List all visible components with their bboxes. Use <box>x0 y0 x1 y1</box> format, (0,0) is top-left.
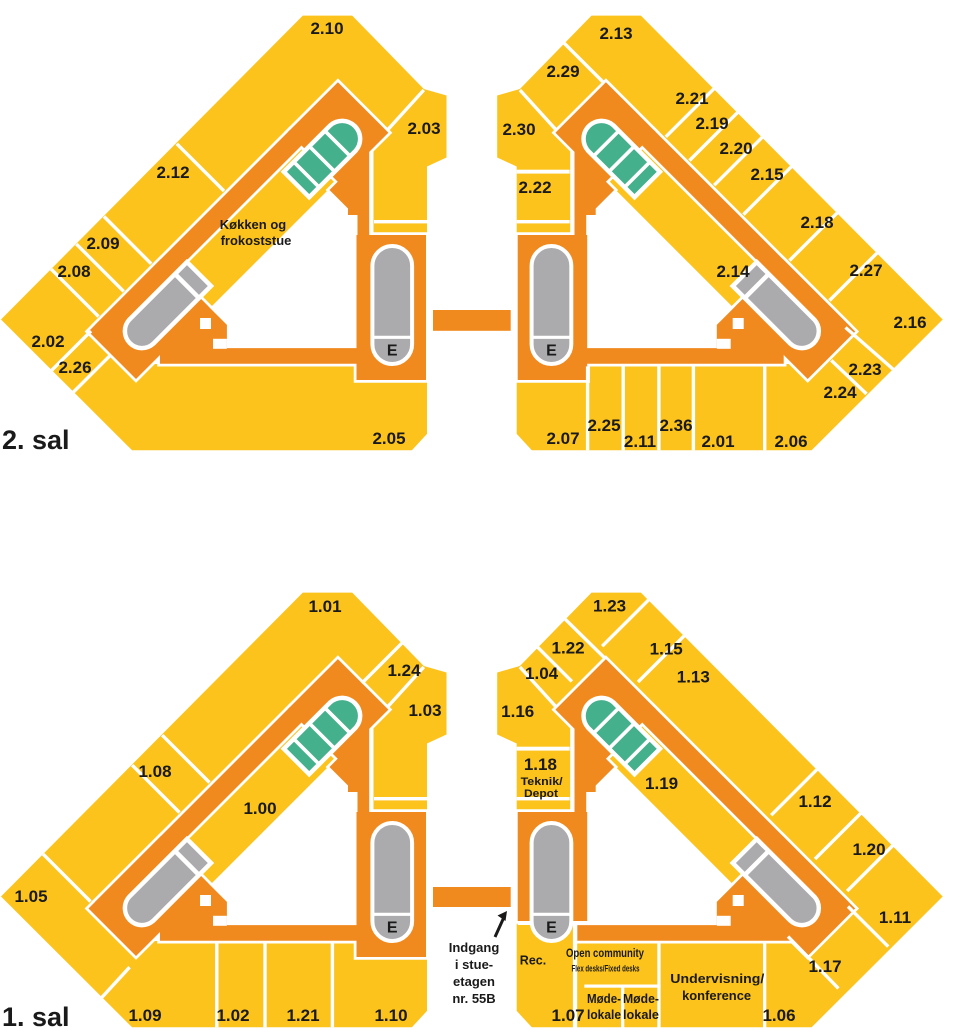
svg-text:Depot: Depot <box>524 788 558 800</box>
svg-text:etagen: etagen <box>453 974 495 989</box>
svg-text:Indgang: Indgang <box>449 940 500 955</box>
svg-text:2.16: 2.16 <box>893 313 926 332</box>
svg-text:Møde-: Møde- <box>623 991 659 1006</box>
svg-text:nr. 55B: nr. 55B <box>452 991 495 1006</box>
svg-text:lokale: lokale <box>623 1007 659 1022</box>
svg-text:2.18: 2.18 <box>800 213 833 232</box>
svg-text:2.09: 2.09 <box>86 234 119 253</box>
svg-text:2.08: 2.08 <box>57 262 90 281</box>
svg-text:2.27: 2.27 <box>849 261 882 280</box>
svg-text:1.12: 1.12 <box>798 792 831 811</box>
svg-text:1.10: 1.10 <box>374 1006 407 1025</box>
svg-text:1.20: 1.20 <box>852 840 885 859</box>
svg-text:2.26: 2.26 <box>58 358 91 377</box>
svg-text:1.13: 1.13 <box>677 667 710 686</box>
svg-text:frokoststue: frokoststue <box>221 233 292 248</box>
svg-text:2.23: 2.23 <box>848 360 881 379</box>
svg-text:2.06: 2.06 <box>774 432 807 451</box>
svg-text:2.24: 2.24 <box>823 383 857 402</box>
svg-text:1.16: 1.16 <box>501 702 534 721</box>
svg-text:2.11: 2.11 <box>624 432 656 451</box>
svg-text:E: E <box>387 920 398 937</box>
svg-text:1.03: 1.03 <box>408 701 441 720</box>
svg-text:1.17: 1.17 <box>808 957 841 976</box>
svg-text:E: E <box>387 343 398 360</box>
svg-text:1.02: 1.02 <box>216 1006 249 1025</box>
svg-text:1.04: 1.04 <box>525 664 559 683</box>
svg-text:1.19: 1.19 <box>645 774 678 793</box>
svg-text:Undervisning/: Undervisning/ <box>670 971 764 986</box>
svg-text:1.23: 1.23 <box>593 597 626 616</box>
svg-text:E: E <box>546 920 557 937</box>
svg-text:1.18: 1.18 <box>524 755 557 774</box>
svg-text:Teknik/: Teknik/ <box>521 776 563 788</box>
svg-text:2.15: 2.15 <box>750 165 783 184</box>
svg-text:Flex desks/Fixed desks: Flex desks/Fixed desks <box>572 964 640 975</box>
svg-text:Møde-: Møde- <box>587 991 621 1006</box>
svg-text:1.07: 1.07 <box>552 1006 585 1025</box>
svg-text:2.21: 2.21 <box>675 89 708 108</box>
svg-text:konference: konference <box>682 988 751 1003</box>
svg-text:1.01: 1.01 <box>308 597 341 616</box>
svg-text:1.00: 1.00 <box>243 799 276 818</box>
svg-text:Open community: Open community <box>566 946 644 960</box>
svg-text:2.36: 2.36 <box>659 416 692 435</box>
svg-text:2.22: 2.22 <box>518 178 551 197</box>
svg-text:1.06: 1.06 <box>762 1006 795 1025</box>
svg-text:1.22: 1.22 <box>552 638 585 657</box>
svg-text:2.02: 2.02 <box>31 332 64 351</box>
svg-text:1.15: 1.15 <box>650 639 683 658</box>
svg-text:2.07: 2.07 <box>546 429 579 448</box>
svg-text:2.10: 2.10 <box>310 19 343 38</box>
svg-text:1.21: 1.21 <box>286 1006 319 1025</box>
svg-text:2.30: 2.30 <box>502 120 535 139</box>
svg-text:E: E <box>546 343 557 360</box>
svg-text:1.24: 1.24 <box>387 661 421 680</box>
svg-text:2.29: 2.29 <box>546 62 579 81</box>
svg-text:2.20: 2.20 <box>719 139 752 158</box>
svg-text:2.19: 2.19 <box>695 114 728 133</box>
svg-text:2.03: 2.03 <box>407 119 440 138</box>
svg-text:2. sal: 2. sal <box>2 425 70 455</box>
svg-text:1.05: 1.05 <box>14 887 47 906</box>
svg-text:i stue-: i stue- <box>455 957 493 972</box>
svg-text:2.13: 2.13 <box>599 24 632 43</box>
svg-text:2.05: 2.05 <box>372 429 405 448</box>
svg-text:Køkken og: Køkken og <box>220 217 287 232</box>
svg-text:1. sal: 1. sal <box>2 1002 70 1030</box>
svg-text:Rec.: Rec. <box>520 954 546 968</box>
svg-text:2.14: 2.14 <box>716 262 750 281</box>
svg-text:1.08: 1.08 <box>138 762 171 781</box>
svg-text:1.11: 1.11 <box>879 908 911 927</box>
svg-text:2.25: 2.25 <box>587 416 620 435</box>
svg-text:1.09: 1.09 <box>128 1006 161 1025</box>
svg-text:lokale: lokale <box>587 1007 621 1022</box>
svg-text:2.01: 2.01 <box>701 432 734 451</box>
svg-text:2.12: 2.12 <box>156 163 189 182</box>
